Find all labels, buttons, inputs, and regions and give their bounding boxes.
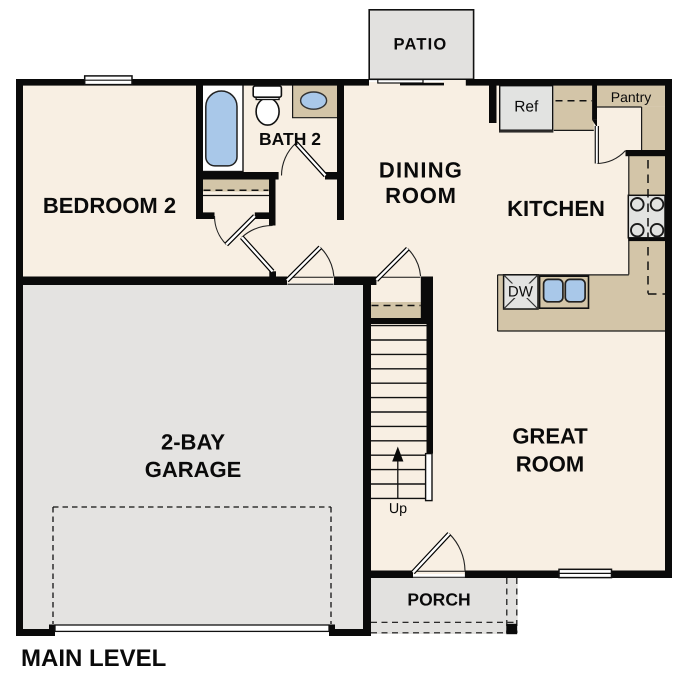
svg-text:GREAT: GREAT <box>512 424 588 449</box>
svg-text:2-BAY: 2-BAY <box>161 430 225 455</box>
svg-text:BEDROOM 2: BEDROOM 2 <box>43 193 176 218</box>
svg-text:DW: DW <box>508 284 534 301</box>
svg-text:Ref: Ref <box>514 99 539 116</box>
svg-text:ROOM: ROOM <box>385 183 457 208</box>
svg-text:GARAGE: GARAGE <box>145 457 242 482</box>
svg-text:PATIO: PATIO <box>394 36 448 54</box>
svg-text:ROOM: ROOM <box>516 452 584 477</box>
svg-text:DINING: DINING <box>379 158 463 183</box>
svg-text:MAIN LEVEL: MAIN LEVEL <box>21 645 166 672</box>
svg-text:Pantry: Pantry <box>611 89 651 105</box>
svg-text:BATH 2: BATH 2 <box>259 129 321 149</box>
svg-text:KITCHEN: KITCHEN <box>507 196 605 221</box>
svg-text:PORCH: PORCH <box>407 590 470 610</box>
svg-text:Up: Up <box>389 501 407 517</box>
